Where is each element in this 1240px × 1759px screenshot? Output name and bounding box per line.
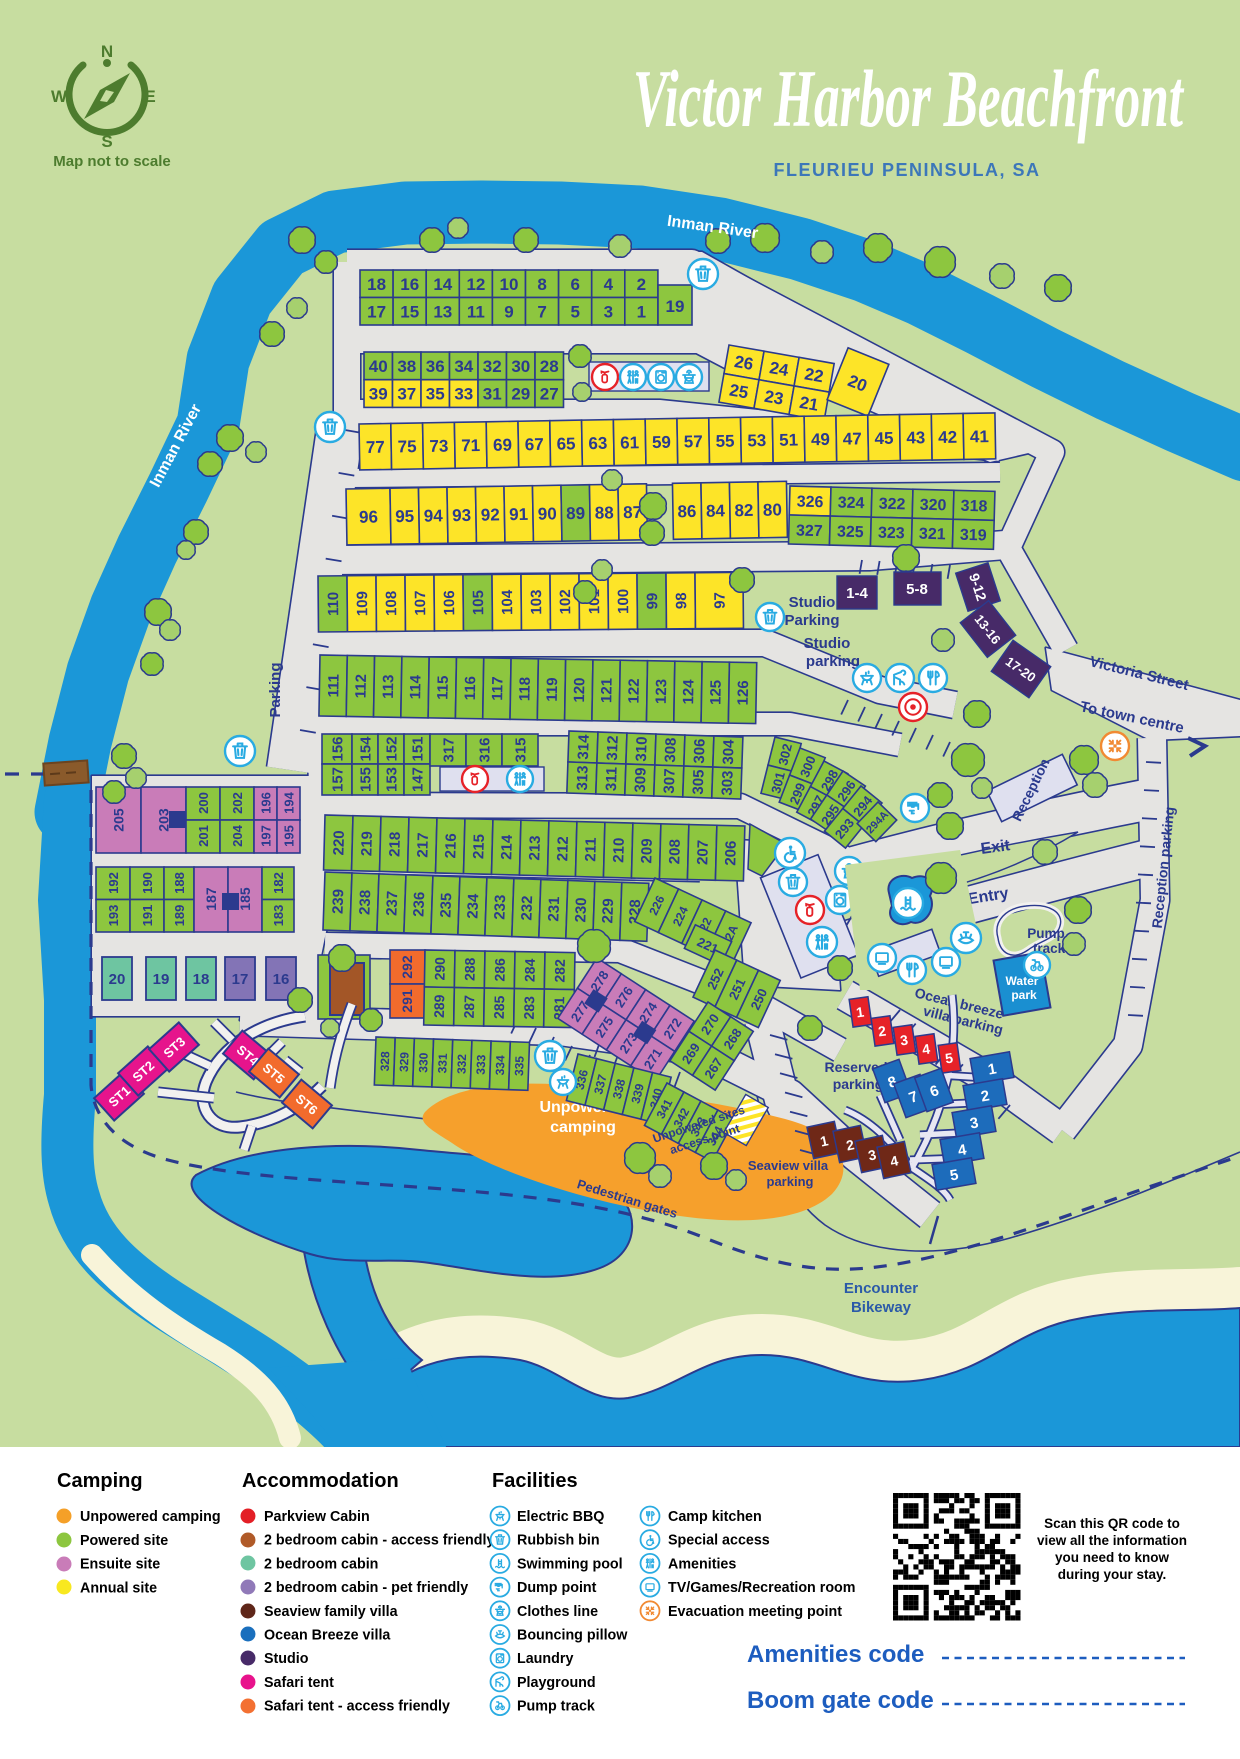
svg-text:239: 239 <box>329 889 347 915</box>
svg-text:119: 119 <box>544 677 561 701</box>
svg-text:39: 39 <box>369 385 388 404</box>
svg-text:13: 13 <box>433 302 452 321</box>
svg-text:329: 329 <box>397 1051 412 1072</box>
svg-text:91: 91 <box>509 505 528 524</box>
svg-text:Scan this QR code to: Scan this QR code to <box>1044 1516 1180 1531</box>
svg-text:194: 194 <box>282 791 297 813</box>
svg-text:77: 77 <box>366 438 385 457</box>
svg-text:51: 51 <box>779 430 798 449</box>
svg-text:118: 118 <box>516 677 533 701</box>
svg-text:Ocean Breeze villa: Ocean Breeze villa <box>264 1628 391 1644</box>
svg-text:4: 4 <box>604 275 614 294</box>
svg-text:Seaview family villa: Seaview family villa <box>264 1604 399 1620</box>
svg-text:Amenities: Amenities <box>668 1556 736 1572</box>
svg-text:84: 84 <box>706 501 726 520</box>
svg-text:18: 18 <box>367 275 386 294</box>
svg-text:2 bedroom cabin - access frien: 2 bedroom cabin - access friendly <box>264 1533 494 1549</box>
svg-text:305: 305 <box>690 769 708 795</box>
svg-text:233: 233 <box>491 894 509 920</box>
svg-text:102: 102 <box>557 589 574 614</box>
svg-text:230: 230 <box>572 897 590 923</box>
svg-text:29: 29 <box>511 385 530 404</box>
svg-text:210: 210 <box>610 837 628 862</box>
svg-text:216: 216 <box>442 833 460 858</box>
svg-text:Safari tent - access friendly: Safari tent - access friendly <box>264 1699 450 1715</box>
svg-text:304: 304 <box>720 739 738 765</box>
svg-text:326: 326 <box>797 493 824 511</box>
svg-text:231: 231 <box>545 896 563 922</box>
svg-text:25: 25 <box>728 381 750 403</box>
svg-text:188: 188 <box>172 872 187 894</box>
svg-text:1: 1 <box>637 302 646 321</box>
svg-text:Bikeway: Bikeway <box>851 1299 912 1316</box>
svg-text:93: 93 <box>452 506 471 525</box>
svg-text:E: E <box>144 87 155 106</box>
svg-text:61: 61 <box>620 433 639 452</box>
svg-text:57: 57 <box>684 432 703 451</box>
svg-text:14: 14 <box>433 275 452 294</box>
svg-text:126: 126 <box>735 680 752 705</box>
svg-text:you need to know: you need to know <box>1055 1550 1170 1565</box>
svg-text:107: 107 <box>412 591 429 616</box>
svg-text:330: 330 <box>416 1052 431 1073</box>
svg-text:125: 125 <box>707 680 724 705</box>
svg-text:323: 323 <box>878 525 905 543</box>
svg-text:Safari tent: Safari tent <box>264 1675 334 1691</box>
svg-text:209: 209 <box>638 838 656 863</box>
svg-text:229: 229 <box>599 898 617 924</box>
svg-text:Laundry: Laundry <box>517 1651 573 1667</box>
svg-text:38: 38 <box>397 357 416 376</box>
svg-text:310: 310 <box>633 736 651 762</box>
svg-text:95: 95 <box>395 507 414 526</box>
svg-text:286: 286 <box>491 958 507 982</box>
svg-text:49: 49 <box>811 430 830 449</box>
svg-text:287: 287 <box>461 995 477 1019</box>
svg-text:319: 319 <box>960 527 987 545</box>
svg-text:309: 309 <box>632 767 650 793</box>
svg-text:191: 191 <box>140 905 155 927</box>
svg-text:67: 67 <box>525 435 544 454</box>
svg-text:Seaview villa: Seaview villa <box>748 1158 829 1173</box>
svg-text:37: 37 <box>397 385 416 404</box>
svg-text:324: 324 <box>837 495 864 513</box>
svg-text:Accommodation: Accommodation <box>242 1470 399 1492</box>
svg-text:55: 55 <box>715 432 734 451</box>
svg-text:105: 105 <box>470 590 487 615</box>
svg-text:Camp kitchen: Camp kitchen <box>668 1509 762 1525</box>
svg-text:5-8: 5-8 <box>906 581 928 598</box>
svg-text:104: 104 <box>499 589 516 615</box>
svg-text:147: 147 <box>409 767 426 792</box>
svg-text:Powered site: Powered site <box>80 1533 168 1549</box>
svg-text:86: 86 <box>677 502 696 521</box>
svg-text:321: 321 <box>919 526 946 544</box>
svg-text:290: 290 <box>431 957 447 981</box>
svg-text:Boom gate code: Boom gate code <box>747 1687 934 1714</box>
svg-text:Amenities code: Amenities code <box>747 1641 924 1668</box>
svg-text:53: 53 <box>747 431 766 450</box>
svg-text:115: 115 <box>434 675 451 699</box>
svg-text:Facilities: Facilities <box>492 1470 578 1492</box>
svg-text:152: 152 <box>383 736 400 761</box>
svg-text:Parkview Cabin: Parkview Cabin <box>264 1509 370 1525</box>
svg-text:316: 316 <box>476 737 493 762</box>
svg-text:120: 120 <box>571 677 588 702</box>
svg-text:235: 235 <box>437 892 455 918</box>
svg-text:318: 318 <box>960 498 987 516</box>
svg-text:2 bedroom cabin - pet friendly: 2 bedroom cabin - pet friendly <box>264 1580 468 1596</box>
svg-text:320: 320 <box>919 497 946 515</box>
svg-text:213: 213 <box>526 835 544 860</box>
svg-text:207: 207 <box>694 840 712 865</box>
svg-text:17: 17 <box>232 971 249 988</box>
svg-text:313: 313 <box>574 765 592 791</box>
svg-text:114: 114 <box>407 674 424 699</box>
svg-text:332: 332 <box>454 1053 469 1074</box>
svg-text:205: 205 <box>111 808 127 832</box>
svg-text:75: 75 <box>397 437 416 456</box>
svg-text:108: 108 <box>383 591 400 616</box>
svg-text:208: 208 <box>666 839 684 864</box>
svg-text:112: 112 <box>353 674 370 698</box>
svg-text:19: 19 <box>153 971 170 988</box>
svg-text:322: 322 <box>878 496 905 514</box>
svg-text:Special access: Special access <box>668 1533 770 1549</box>
svg-text:73: 73 <box>429 437 448 456</box>
svg-text:Evacuation meeting point: Evacuation meeting point <box>668 1604 842 1620</box>
svg-text:100: 100 <box>615 589 632 614</box>
svg-text:Bouncing pillow: Bouncing pillow <box>517 1628 628 1644</box>
svg-text:Studio: Studio <box>789 594 836 611</box>
svg-text:193: 193 <box>106 905 121 927</box>
svg-text:park: park <box>1011 988 1037 1002</box>
svg-text:232: 232 <box>518 895 536 921</box>
svg-text:Ensuite site: Ensuite site <box>80 1557 160 1573</box>
svg-text:123: 123 <box>653 679 670 704</box>
svg-text:16: 16 <box>400 275 419 294</box>
svg-text:69: 69 <box>493 435 512 454</box>
svg-text:17: 17 <box>367 302 386 321</box>
svg-text:6: 6 <box>570 275 579 294</box>
svg-text:182: 182 <box>271 872 286 894</box>
svg-text:99: 99 <box>644 593 661 610</box>
svg-text:42: 42 <box>938 428 957 447</box>
svg-text:Unpowered camping: Unpowered camping <box>80 1509 221 1525</box>
svg-text:Pump: Pump <box>1027 926 1065 941</box>
svg-text:90: 90 <box>538 504 557 523</box>
svg-text:Victor Harbor Beachfront: Victor Harbor Beachfront <box>633 53 1184 144</box>
svg-text:Studio: Studio <box>264 1651 309 1667</box>
svg-text:35: 35 <box>426 385 445 404</box>
svg-text:237: 237 <box>383 891 401 917</box>
svg-text:116: 116 <box>462 676 479 700</box>
svg-text:Annual site: Annual site <box>80 1580 157 1596</box>
svg-text:291: 291 <box>399 989 415 1013</box>
svg-text:211: 211 <box>582 837 600 862</box>
svg-text:45: 45 <box>874 429 893 448</box>
svg-text:315: 315 <box>512 737 529 762</box>
svg-text:202: 202 <box>230 792 245 814</box>
svg-text:197: 197 <box>259 825 274 847</box>
svg-text:190: 190 <box>140 872 155 894</box>
svg-text:110: 110 <box>325 592 342 616</box>
svg-text:94: 94 <box>424 506 444 525</box>
svg-text:16: 16 <box>273 971 290 988</box>
svg-text:28: 28 <box>540 357 559 376</box>
svg-text:20: 20 <box>109 971 126 988</box>
svg-text:196: 196 <box>259 792 274 814</box>
svg-text:218: 218 <box>386 832 404 857</box>
svg-text:236: 236 <box>410 892 428 918</box>
svg-text:during your stay.: during your stay. <box>1058 1567 1167 1582</box>
svg-text:31: 31 <box>483 385 502 404</box>
svg-text:234: 234 <box>464 893 482 919</box>
svg-text:238: 238 <box>356 890 374 916</box>
svg-text:parking: parking <box>767 1174 814 1189</box>
svg-text:183: 183 <box>271 905 286 927</box>
svg-text:Pump track: Pump track <box>517 1699 595 1715</box>
svg-text:220: 220 <box>330 830 348 855</box>
svg-text:206: 206 <box>722 840 740 865</box>
svg-text:Parking: Parking <box>267 662 284 717</box>
svg-text:289: 289 <box>431 994 447 1018</box>
svg-text:157: 157 <box>329 767 346 792</box>
svg-text:19: 19 <box>666 297 685 316</box>
svg-text:124: 124 <box>680 679 697 705</box>
svg-text:333: 333 <box>474 1054 489 1075</box>
svg-text:219: 219 <box>358 831 376 856</box>
svg-text:40: 40 <box>369 357 388 376</box>
svg-text:82: 82 <box>734 501 753 520</box>
svg-text:59: 59 <box>652 433 671 452</box>
svg-text:5: 5 <box>570 302 579 321</box>
svg-text:331: 331 <box>435 1053 450 1074</box>
svg-text:30: 30 <box>511 357 530 376</box>
svg-text:98: 98 <box>673 592 690 609</box>
svg-text:34: 34 <box>454 357 473 376</box>
svg-text:Map not to scale: Map not to scale <box>53 153 171 170</box>
svg-text:47: 47 <box>843 429 862 448</box>
svg-text:187: 187 <box>203 887 219 911</box>
svg-text:63: 63 <box>588 434 607 453</box>
svg-text:327: 327 <box>796 522 823 540</box>
svg-text:121: 121 <box>598 678 615 703</box>
svg-text:292: 292 <box>399 955 415 979</box>
svg-text:1-4: 1-4 <box>846 585 868 602</box>
svg-text:96: 96 <box>359 507 378 526</box>
svg-text:189: 189 <box>172 905 187 927</box>
svg-text:155: 155 <box>357 767 374 792</box>
svg-text:314: 314 <box>575 734 593 760</box>
svg-text:97: 97 <box>712 592 729 609</box>
svg-text:192: 192 <box>106 872 121 894</box>
svg-text:27: 27 <box>540 385 559 404</box>
svg-text:106: 106 <box>441 590 458 615</box>
svg-text:212: 212 <box>554 836 572 861</box>
svg-text:284: 284 <box>521 958 537 982</box>
svg-text:71: 71 <box>461 436 480 455</box>
svg-text:22: 22 <box>803 364 825 386</box>
svg-text:306: 306 <box>691 738 709 764</box>
svg-text:317: 317 <box>440 737 457 762</box>
svg-text:122: 122 <box>626 678 643 703</box>
svg-text:111: 111 <box>325 674 342 698</box>
svg-text:200: 200 <box>196 792 211 814</box>
svg-text:113: 113 <box>380 674 397 698</box>
svg-text:7: 7 <box>537 302 546 321</box>
svg-text:328: 328 <box>378 1051 393 1072</box>
svg-text:201: 201 <box>196 825 211 847</box>
svg-text:215: 215 <box>470 834 488 859</box>
svg-text:156: 156 <box>329 736 346 761</box>
svg-text:36: 36 <box>426 357 445 376</box>
svg-text:117: 117 <box>489 676 506 700</box>
svg-text:283: 283 <box>521 996 537 1020</box>
svg-text:153: 153 <box>383 767 400 792</box>
svg-text:43: 43 <box>906 428 925 447</box>
svg-text:195: 195 <box>282 825 297 847</box>
svg-text:Rubbish bin: Rubbish bin <box>517 1533 600 1549</box>
svg-text:S: S <box>101 132 112 151</box>
svg-text:Swimming pool: Swimming pool <box>517 1556 623 1572</box>
svg-text:2: 2 <box>637 275 646 294</box>
svg-text:24: 24 <box>768 358 790 380</box>
svg-text:Clothes line: Clothes line <box>517 1604 598 1620</box>
svg-text:N: N <box>101 42 113 61</box>
svg-text:3: 3 <box>604 302 613 321</box>
svg-text:335: 335 <box>512 1055 527 1076</box>
svg-text:109: 109 <box>354 591 371 616</box>
svg-text:Encounter: Encounter <box>844 1280 918 1297</box>
svg-text:Playground: Playground <box>517 1675 596 1691</box>
svg-text:303: 303 <box>719 770 737 796</box>
svg-text:288: 288 <box>461 957 477 981</box>
svg-text:26: 26 <box>733 352 755 374</box>
svg-text:32: 32 <box>483 357 502 376</box>
svg-text:W: W <box>51 87 68 106</box>
svg-text:92: 92 <box>481 505 500 524</box>
svg-text:TV/Games/Recreation room: TV/Games/Recreation room <box>668 1580 856 1596</box>
svg-text:10: 10 <box>500 275 519 294</box>
svg-text:15: 15 <box>400 302 419 321</box>
svg-text:312: 312 <box>604 735 622 761</box>
svg-text:Electric BBQ: Electric BBQ <box>517 1509 604 1525</box>
svg-text:204: 204 <box>230 824 245 846</box>
svg-text:12: 12 <box>466 275 485 294</box>
svg-text:Studio: Studio <box>804 635 851 652</box>
svg-text:18: 18 <box>193 971 210 988</box>
svg-text:9: 9 <box>504 302 513 321</box>
svg-text:151: 151 <box>409 736 426 761</box>
svg-text:185: 185 <box>237 887 253 911</box>
svg-text:33: 33 <box>454 385 473 404</box>
svg-text:FLEURIEU PENINSULA, SA: FLEURIEU PENINSULA, SA <box>773 160 1040 180</box>
svg-text:23: 23 <box>763 387 785 409</box>
svg-text:89: 89 <box>566 504 585 523</box>
svg-text:154: 154 <box>357 736 374 762</box>
svg-text:334: 334 <box>493 1055 508 1076</box>
svg-text:view all the information: view all the information <box>1037 1533 1187 1548</box>
svg-text:80: 80 <box>763 500 782 519</box>
svg-text:41: 41 <box>970 427 989 446</box>
svg-text:Dump point: Dump point <box>517 1580 597 1596</box>
svg-text:217: 217 <box>414 832 432 857</box>
svg-text:camping: camping <box>550 1119 616 1136</box>
svg-text:parking: parking <box>806 653 860 670</box>
svg-text:8: 8 <box>537 275 546 294</box>
svg-text:Parking: Parking <box>784 612 839 629</box>
svg-text:Camping: Camping <box>57 1470 143 1492</box>
svg-text:21: 21 <box>798 393 820 415</box>
svg-text:65: 65 <box>556 434 575 453</box>
svg-text:308: 308 <box>662 737 680 763</box>
svg-text:282: 282 <box>551 959 567 983</box>
svg-text:214: 214 <box>498 834 516 860</box>
svg-text:88: 88 <box>595 503 614 522</box>
svg-text:11: 11 <box>467 302 485 321</box>
svg-text:325: 325 <box>837 524 864 542</box>
svg-text:311: 311 <box>603 767 621 792</box>
svg-text:285: 285 <box>491 995 507 1019</box>
svg-text:103: 103 <box>528 590 545 615</box>
svg-text:2 bedroom cabin: 2 bedroom cabin <box>264 1556 378 1572</box>
svg-text:307: 307 <box>661 768 679 794</box>
